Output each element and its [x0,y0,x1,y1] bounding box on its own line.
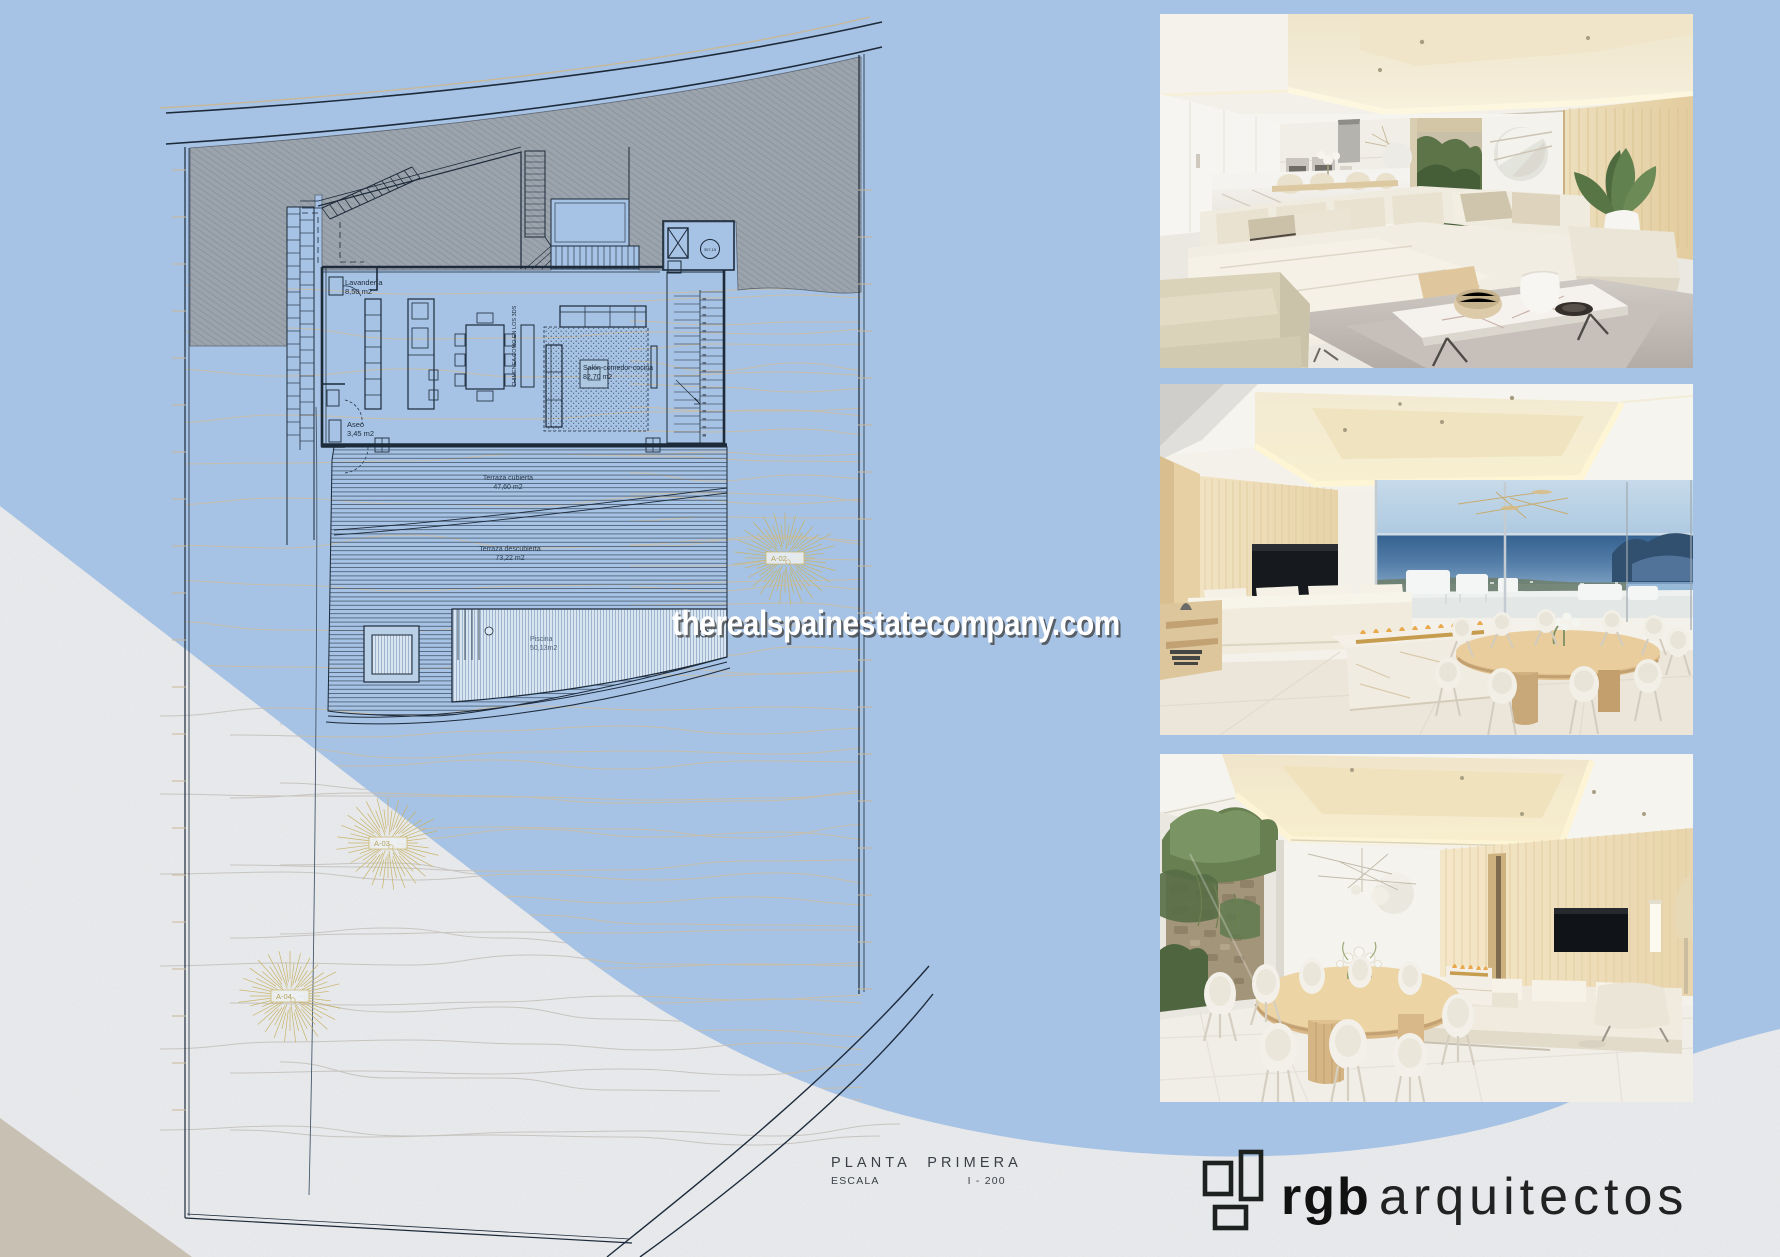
svg-text:A-04: A-04 [276,992,292,1001]
svg-text:47,60 m2: 47,60 m2 [493,484,522,491]
svg-text:Salón-comedor-cocina: Salón-comedor-cocina [583,365,653,372]
svg-text:73,22 m2: 73,22 m2 [495,555,524,562]
svg-text:rgb: rgb [1281,1168,1371,1226]
svg-text:307,15: 307,15 [704,247,717,252]
svg-text:50,13m2: 50,13m2 [530,645,557,652]
svg-text:arquitectos: arquitectos [1379,1168,1688,1226]
svg-text:Terraza descubierta: Terraza descubierta [479,546,541,553]
svg-text:Aseo: Aseo [347,420,364,429]
svg-text:3,45 m2: 3,45 m2 [347,429,374,438]
svg-text:A-03: A-03 [374,839,390,848]
svg-text:A-02: A-02 [771,554,787,563]
svg-text:CHIMENEA COMO EN LOS 3DS: CHIMENEA COMO EN LOS 3DS [512,305,518,387]
svg-text:Piscina: Piscina [530,636,553,643]
svg-text:82,70 m2: 82,70 m2 [583,374,612,381]
svg-text:Lavandería: Lavandería [345,278,383,287]
svg-text:8,50 m2: 8,50 m2 [345,287,372,296]
svg-text:Terraza cubierta: Terraza cubierta [483,475,533,482]
